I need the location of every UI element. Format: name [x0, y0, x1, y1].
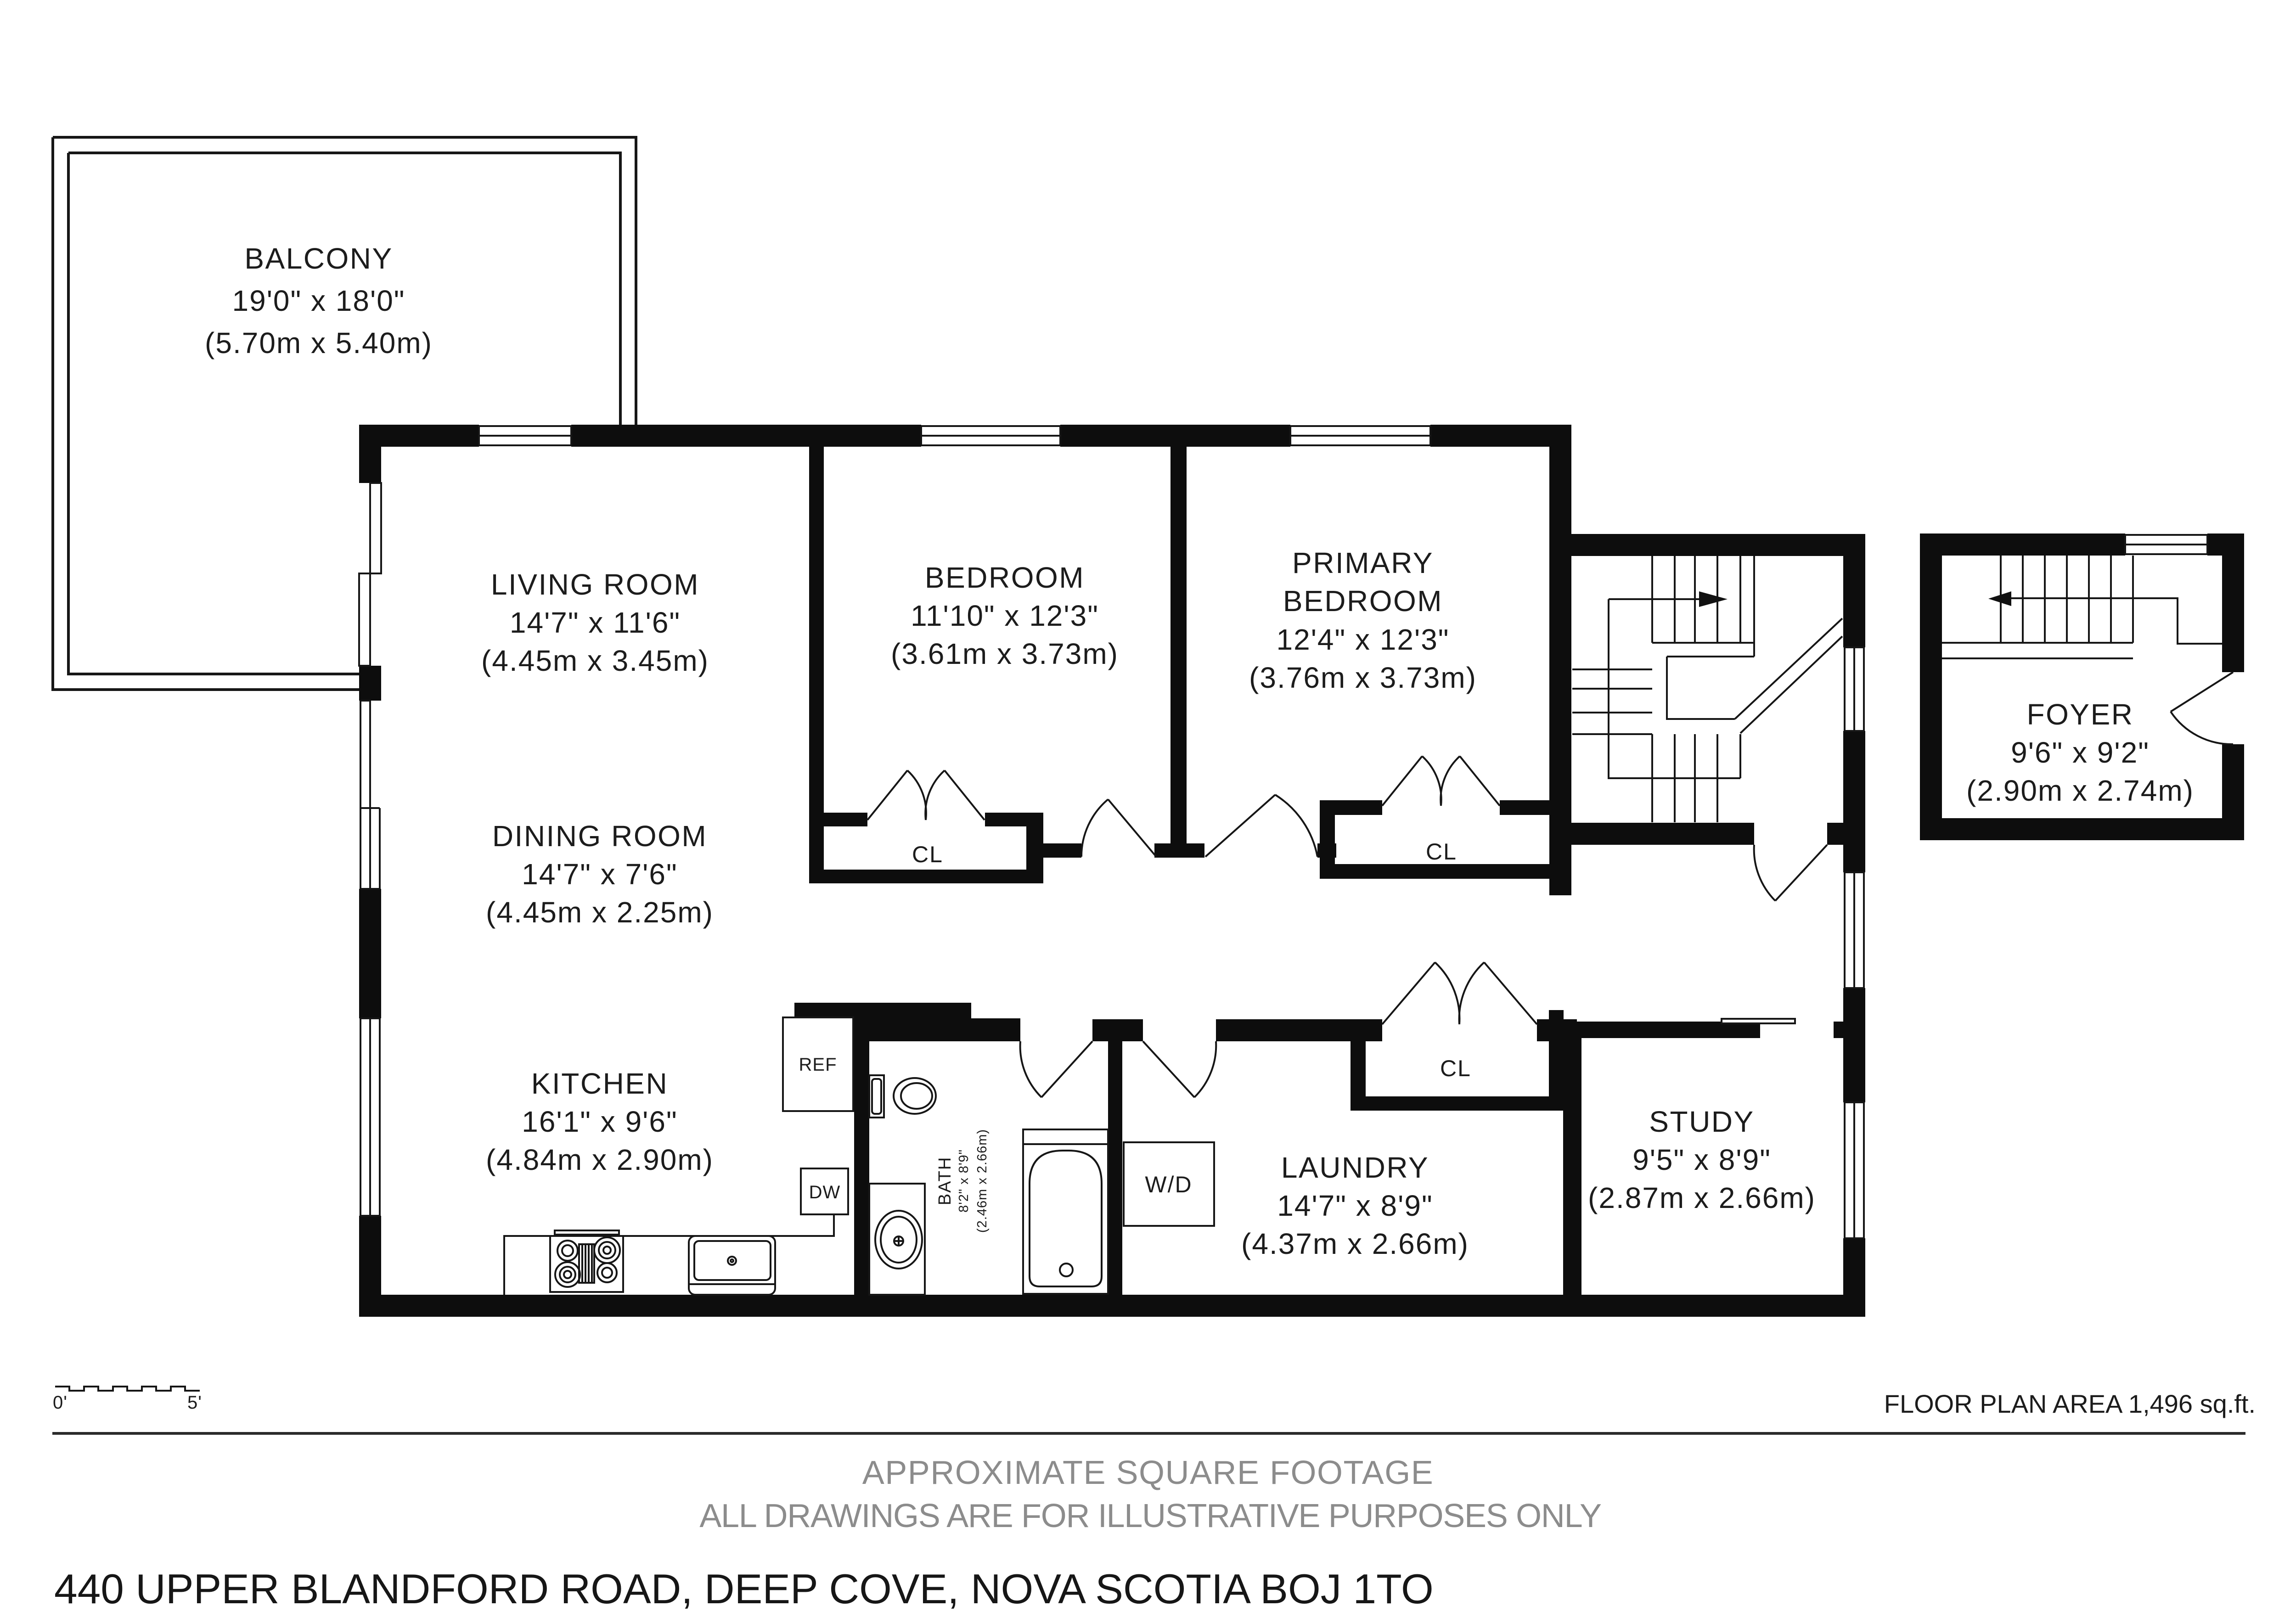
svg-text:CL: CL [1440, 1056, 1471, 1081]
svg-text:(4.45m x 3.45m): (4.45m x 3.45m) [481, 644, 709, 677]
svg-text:FLOOR PLAN AREA 1,496 sq.ft.: FLOOR PLAN AREA 1,496 sq.ft. [1884, 1389, 2256, 1418]
svg-text:16'1" x 9'6": 16'1" x 9'6" [522, 1105, 677, 1138]
svg-text:REF: REF [799, 1055, 837, 1075]
svg-text:APPROXIMATE SQUARE FOOTAGE: APPROXIMATE SQUARE FOOTAGE [862, 1455, 1434, 1491]
svg-text:5': 5' [187, 1393, 202, 1413]
svg-text:KITCHEN: KITCHEN [531, 1067, 668, 1100]
svg-text:(4.84m x 2.90m): (4.84m x 2.90m) [486, 1143, 714, 1176]
svg-text:12'4" x 12'3": 12'4" x 12'3" [1277, 623, 1450, 656]
svg-text:DINING ROOM: DINING ROOM [492, 820, 707, 853]
svg-text:(5.70m x 5.40m): (5.70m x 5.40m) [205, 326, 433, 359]
svg-text:LIVING ROOM: LIVING ROOM [491, 568, 699, 601]
svg-text:FOYER: FOYER [2027, 698, 2134, 731]
svg-text:19'0" x 18'0": 19'0" x 18'0" [232, 284, 405, 317]
svg-text:(4.37m x 2.66m): (4.37m x 2.66m) [1241, 1227, 1469, 1260]
svg-text:BEDROOM: BEDROOM [1283, 584, 1443, 618]
svg-text:BEDROOM: BEDROOM [925, 561, 1085, 594]
svg-text:440 UPPER BLANDFORD ROAD, DEEP: 440 UPPER BLANDFORD ROAD, DEEP COVE, NOV… [54, 1566, 1434, 1612]
svg-text:ALL DRAWINGS ARE FOR ILLUSTRAT: ALL DRAWINGS ARE FOR ILLUSTRATIVE PURPOS… [699, 1498, 1601, 1534]
svg-text:14'7" x 8'9": 14'7" x 8'9" [1277, 1189, 1433, 1222]
svg-text:9'5" x 8'9": 9'5" x 8'9" [1632, 1143, 1771, 1176]
svg-text:14'7" x 7'6": 14'7" x 7'6" [522, 858, 677, 891]
svg-text:BALCONY: BALCONY [244, 242, 393, 275]
svg-text:8'2" x 8'9": 8'2" x 8'9" [957, 1149, 971, 1213]
svg-text:PRIMARY: PRIMARY [1292, 546, 1434, 579]
svg-text:CL: CL [1426, 839, 1457, 865]
svg-text:CL: CL [912, 842, 943, 867]
svg-text:W/D: W/D [1145, 1172, 1192, 1197]
svg-text:(3.61m x 3.73m): (3.61m x 3.73m) [891, 637, 1119, 670]
svg-text:(2.46m x 2.66m): (2.46m x 2.66m) [975, 1129, 990, 1233]
svg-text:(4.45m x 2.25m): (4.45m x 2.25m) [486, 896, 714, 929]
svg-text:BATH: BATH [935, 1157, 955, 1206]
svg-text:(3.76m x 3.73m): (3.76m x 3.73m) [1249, 661, 1477, 694]
svg-text:(2.90m x 2.74m): (2.90m x 2.74m) [1966, 774, 2194, 807]
svg-text:0': 0' [53, 1393, 68, 1413]
svg-text:9'6" x 9'2": 9'6" x 9'2" [2011, 736, 2150, 769]
svg-text:(2.87m x 2.66m): (2.87m x 2.66m) [1588, 1181, 1816, 1214]
svg-text:14'7" x 11'6": 14'7" x 11'6" [510, 606, 681, 639]
svg-text:11'10" x 12'3": 11'10" x 12'3" [911, 599, 1099, 632]
svg-text:DW: DW [809, 1182, 841, 1202]
svg-text:STUDY: STUDY [1649, 1105, 1754, 1138]
svg-text:LAUNDRY: LAUNDRY [1281, 1151, 1429, 1184]
